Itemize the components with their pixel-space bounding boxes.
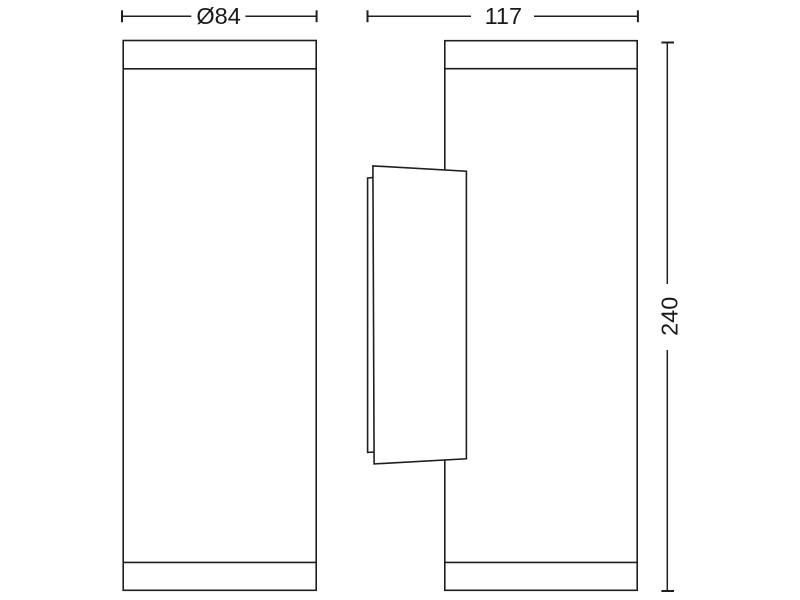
svg-text:240: 240 xyxy=(657,297,683,336)
svg-text:Ø84: Ø84 xyxy=(196,3,240,29)
svg-text:117: 117 xyxy=(485,3,522,29)
